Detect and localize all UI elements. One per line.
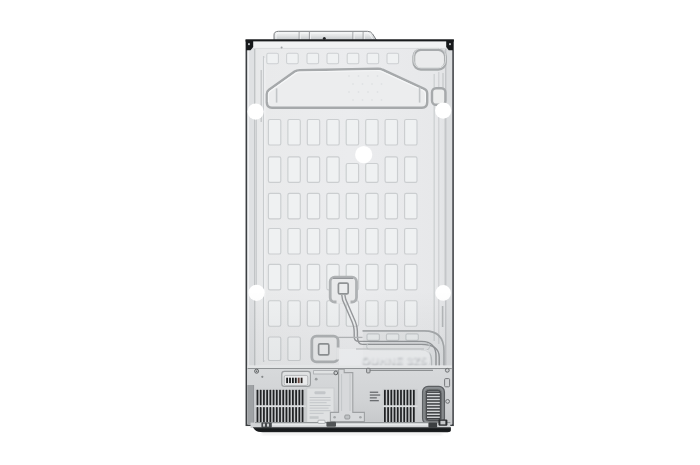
svg-text:OUHNE 3Z5: OUHNE 3Z5 [362,354,427,366]
